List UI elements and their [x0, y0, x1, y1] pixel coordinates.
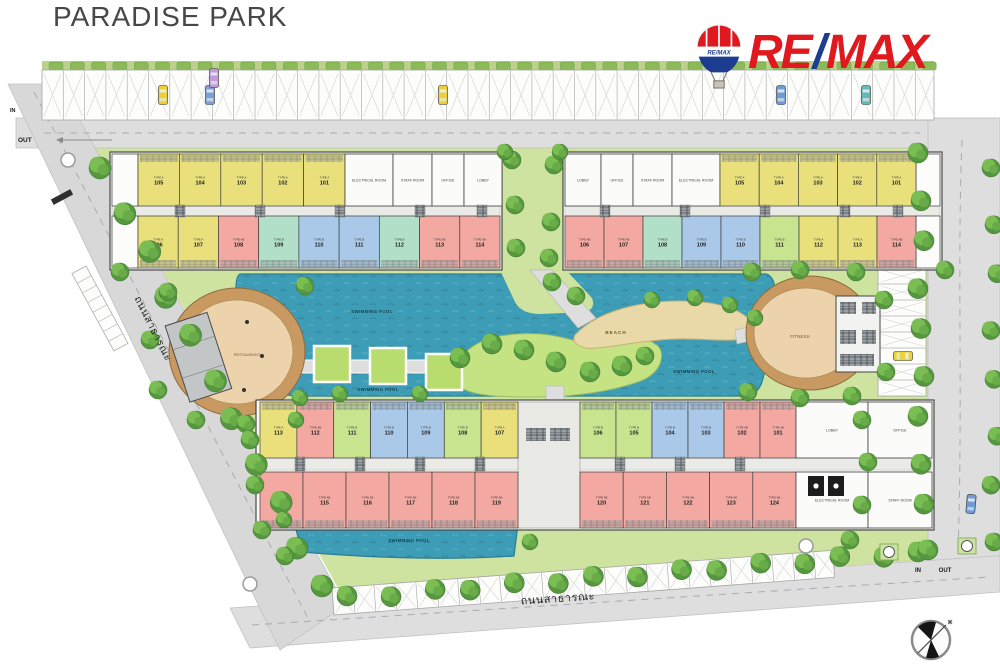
tree-icon — [514, 340, 534, 360]
svg-text:111: 111 — [355, 243, 364, 249]
svg-text:104: 104 — [196, 181, 206, 187]
unit-109: TYPE B109 — [259, 216, 299, 268]
unit-121: TYPE AB121 — [623, 472, 666, 528]
svg-text:120: 120 — [597, 501, 606, 507]
unit-111: TYPE B111 — [760, 216, 799, 268]
svg-text:TYPE AB: TYPE AB — [639, 496, 651, 500]
svg-text:OFFICE: OFFICE — [893, 429, 907, 433]
unit-103: TYPE A103 — [798, 154, 837, 206]
tree-icon — [237, 415, 255, 433]
room-electrical-room: ELECTRICAL ROOM — [345, 154, 393, 206]
svg-text:TYPE A: TYPE A — [153, 238, 163, 242]
svg-text:106: 106 — [580, 243, 589, 249]
tree-icon — [497, 144, 513, 160]
restaurant-dot — [260, 354, 264, 358]
svg-text:TYPE A: TYPE A — [892, 176, 902, 180]
tree-icon — [914, 494, 934, 514]
tree-icon — [612, 356, 632, 376]
tree-icon — [795, 554, 815, 574]
tree-icon — [149, 381, 167, 399]
room-office: OFFICE — [432, 154, 464, 206]
unit-104: TYPE B104 — [652, 402, 688, 458]
tree-icon — [580, 362, 600, 382]
svg-text:TYPE AB: TYPE AB — [362, 496, 374, 500]
tree-icon — [460, 580, 480, 600]
tree-icon — [722, 297, 738, 313]
tree-icon — [841, 531, 859, 549]
svg-text:TYPE B: TYPE B — [314, 238, 324, 242]
unit-103: TYPE B103 — [688, 402, 724, 458]
svg-text:TYPE A: TYPE A — [813, 176, 823, 180]
svg-text:TYPE AB: TYPE AB — [682, 496, 694, 500]
svg-text:TYPE AB: TYPE AB — [736, 426, 748, 430]
tree-icon — [276, 512, 292, 528]
svg-text:107: 107 — [194, 243, 203, 249]
svg-text:114: 114 — [892, 243, 902, 249]
unit-101: TYPE A101 — [877, 154, 916, 206]
tree-icon — [506, 196, 524, 214]
svg-text:108: 108 — [458, 431, 467, 437]
fitness-label: FITNESS — [790, 334, 809, 339]
tree-icon — [543, 273, 561, 291]
landscape-circle — [243, 577, 257, 591]
tree-icon — [381, 587, 401, 607]
gate-booth-circle — [884, 547, 895, 558]
svg-text:105: 105 — [629, 431, 638, 437]
remax-max: MAX — [826, 26, 927, 79]
tree-icon — [936, 261, 954, 279]
svg-text:TYPE B: TYPE B — [701, 426, 711, 430]
room-lobby: LOBBY — [464, 154, 502, 206]
unit-122: TYPE AB122 — [666, 472, 709, 528]
unit-115: TYPE AB115 — [303, 472, 346, 528]
tree-icon — [636, 347, 654, 365]
remax-wordmark: RE/MAX — [748, 22, 927, 84]
unit-102: TYPE AB102 — [724, 402, 760, 458]
tree-icon — [908, 278, 928, 298]
svg-text:118: 118 — [449, 501, 458, 507]
svg-text:TYPE AB: TYPE AB — [596, 496, 608, 500]
tree-icon — [139, 240, 161, 262]
svg-text:TYPE B: TYPE B — [658, 238, 668, 242]
svg-text:TYPE AB: TYPE AB — [309, 426, 321, 430]
unit-102: TYPE A102 — [838, 154, 877, 206]
label-out-left: OUT — [18, 137, 32, 144]
unit-101: TYPE AB101 — [760, 402, 796, 458]
svg-text:113: 113 — [274, 431, 283, 437]
svg-text:TYPE B: TYPE B — [274, 238, 284, 242]
svg-text:122: 122 — [683, 501, 692, 507]
tree-icon — [843, 387, 861, 405]
tree-icon — [270, 491, 292, 513]
tree-icon — [482, 334, 502, 354]
unit-112: TYPE AB112 — [297, 402, 334, 458]
svg-text:TYPE AB: TYPE AB — [233, 238, 245, 242]
tree-icon — [875, 291, 893, 309]
svg-text:TYPE B: TYPE B — [354, 238, 364, 242]
beach-label: BEACH — [605, 330, 626, 335]
unit-102: TYPE A102 — [262, 154, 303, 206]
svg-text:STAFF ROOM: STAFF ROOM — [888, 499, 911, 503]
unit-105: TYPE B105 — [616, 402, 652, 458]
remax-slash: / — [811, 26, 826, 79]
room-electrical-room: ELECTRICAL ROOM — [672, 154, 720, 206]
svg-text:TYPE A: TYPE A — [495, 426, 505, 430]
svg-text:TYPE A: TYPE A — [274, 426, 284, 430]
tree-icon — [187, 411, 205, 429]
tree-icon — [111, 263, 129, 281]
unit-116: TYPE AB116 — [346, 472, 389, 528]
svg-text:124: 124 — [770, 501, 780, 507]
room-lobby: LOBBY — [796, 402, 868, 458]
unit-106: TYPE AB106 — [565, 216, 604, 268]
svg-text:109: 109 — [421, 431, 430, 437]
svg-text:117: 117 — [406, 501, 415, 507]
car-icon — [894, 352, 913, 361]
unit-110: TYPE B110 — [371, 402, 408, 458]
unit-114: TYPE AB114 — [877, 216, 916, 268]
tree-icon — [542, 213, 560, 231]
svg-text:TYPE A: TYPE A — [774, 176, 784, 180]
fitness-block — [840, 302, 856, 314]
remax-re: RE — [748, 26, 811, 79]
svg-text:TYPE A: TYPE A — [853, 238, 863, 242]
unit-105: TYPE A105 — [138, 154, 179, 206]
tree-icon — [985, 533, 1000, 551]
svg-text:104: 104 — [774, 181, 784, 187]
room-lobby: LOBBY — [565, 154, 601, 206]
svg-text:TYPE A: TYPE A — [237, 176, 247, 180]
pool-label-1: SWIMMING POOL — [351, 309, 392, 314]
tree-icon — [332, 386, 348, 402]
tree-icon — [859, 453, 877, 471]
svg-text:OFFICE: OFFICE — [610, 179, 624, 183]
tree-icon — [911, 191, 931, 211]
svg-text:OFFICE: OFFICE — [441, 179, 455, 183]
unit-113: TYPE A113 — [838, 216, 877, 268]
svg-text:103: 103 — [237, 181, 246, 187]
unit-109: TYPE B109 — [682, 216, 721, 268]
tree-icon — [296, 277, 314, 295]
tree-icon — [743, 263, 761, 281]
tree-icon — [853, 411, 871, 429]
svg-text:112: 112 — [395, 243, 404, 249]
unit-107: TYPE AB107 — [604, 216, 643, 268]
svg-text:TYPE B: TYPE B — [736, 238, 746, 242]
svg-text:TYPE AB: TYPE AB — [579, 238, 591, 242]
room-office: OFFICE — [601, 154, 633, 206]
svg-text:110: 110 — [385, 431, 394, 437]
tree-icon — [707, 560, 727, 580]
car-icon — [439, 86, 448, 105]
unit-101: TYPE A101 — [304, 154, 345, 206]
tree-icon — [276, 547, 294, 565]
tree-icon — [567, 287, 585, 305]
unit-110: TYPE B110 — [299, 216, 339, 268]
svg-text:TYPE B: TYPE B — [775, 238, 785, 242]
tree-icon — [985, 370, 1000, 388]
tree-icon — [847, 263, 865, 281]
svg-text:119: 119 — [492, 501, 501, 507]
svg-text:111: 111 — [348, 431, 357, 437]
tree-icon — [245, 453, 267, 475]
svg-text:TYPE AB: TYPE AB — [725, 496, 737, 500]
tree-icon — [791, 389, 809, 407]
fitness-block — [862, 302, 876, 314]
tree-icon — [311, 575, 333, 597]
tree-icon — [908, 406, 928, 426]
unit-106: TYPE B106 — [580, 402, 616, 458]
unit-105: TYPE A105 — [720, 154, 759, 206]
gate-booth-circle — [962, 541, 973, 552]
tree-icon — [522, 534, 538, 550]
tree-icon — [292, 390, 308, 406]
car-icon — [206, 86, 215, 105]
svg-text:115: 115 — [320, 501, 329, 507]
svg-text:TYPE B: TYPE B — [384, 426, 394, 430]
tree-icon — [628, 567, 648, 587]
svg-text:TYPE AB: TYPE AB — [474, 238, 486, 242]
svg-text:TYPE AB: TYPE AB — [769, 496, 781, 500]
svg-text:TYPE B: TYPE B — [347, 426, 357, 430]
svg-text:101: 101 — [892, 181, 901, 187]
tree-icon — [159, 283, 177, 301]
room-staff-room: STAFF ROOM — [633, 154, 672, 206]
label-out-right: OUT — [939, 568, 952, 574]
tree-icon — [982, 159, 1000, 177]
svg-text:111: 111 — [775, 243, 784, 249]
pool-label-3: SWIMMING POOL — [673, 369, 714, 374]
fitness-block — [840, 330, 856, 344]
tree-icon — [911, 318, 931, 338]
svg-text:102: 102 — [853, 181, 862, 187]
tree-icon — [914, 231, 934, 251]
unit-124: TYPE AB124 — [753, 472, 796, 528]
svg-text:109: 109 — [697, 243, 706, 249]
car-icon — [210, 69, 219, 88]
svg-text:110: 110 — [315, 243, 324, 249]
unit-112: TYPE B112 — [379, 216, 419, 268]
tree-icon — [548, 573, 568, 593]
room-staff-room: STAFF ROOM — [393, 154, 432, 206]
tree-icon — [739, 383, 757, 401]
svg-text:ELECTRICAL ROOM: ELECTRICAL ROOM — [679, 179, 713, 183]
unit-108: TYPE AB108 — [218, 216, 258, 268]
tree-icon — [877, 363, 895, 381]
tree-icon — [425, 579, 445, 599]
svg-text:112: 112 — [814, 243, 823, 249]
svg-text:STAFF ROOM: STAFF ROOM — [641, 179, 664, 183]
tree-icon — [747, 310, 763, 326]
svg-text:113: 113 — [435, 243, 444, 249]
svg-text:LOBBY: LOBBY — [477, 179, 490, 183]
tree-icon — [672, 560, 692, 580]
remax-balloon-icon: RE/MAX — [692, 22, 746, 90]
svg-text:108: 108 — [658, 243, 667, 249]
svg-text:109: 109 — [274, 243, 283, 249]
svg-text:108: 108 — [234, 243, 243, 249]
tree-icon — [644, 292, 660, 308]
unit-123: TYPE AB123 — [710, 472, 753, 528]
unit-111: TYPE B111 — [339, 216, 379, 268]
svg-text:TYPE A: TYPE A — [814, 238, 824, 242]
fitness-block — [862, 330, 876, 344]
balloon-wordmark: RE/MAX — [707, 50, 731, 56]
svg-text:114: 114 — [475, 243, 485, 249]
pool-square-2 — [370, 348, 406, 384]
site-plan: TYPE A105TYPE A104TYPE A103TYPE A102TYPE… — [0, 0, 1000, 667]
tree-icon — [751, 553, 771, 573]
tree-icon — [985, 216, 1000, 234]
tree-icon — [337, 586, 357, 606]
unit-112: TYPE A112 — [799, 216, 838, 268]
unit-107: TYPE A107 — [178, 216, 218, 268]
remax-logo: RE/MAX RE/MAX — [692, 22, 927, 90]
svg-text:TYPE A: TYPE A — [278, 176, 288, 180]
svg-text:TYPE B: TYPE B — [697, 238, 707, 242]
landscape-circle — [61, 153, 75, 167]
tree-icon — [583, 566, 603, 586]
fitness-block — [840, 354, 874, 366]
svg-text:TYPE B: TYPE B — [593, 426, 603, 430]
svg-text:TYPE A: TYPE A — [319, 176, 329, 180]
tree-icon — [791, 261, 809, 279]
tree-icon — [412, 386, 428, 402]
tree-icon — [246, 476, 264, 494]
unit-120: TYPE AB120 — [580, 472, 623, 528]
svg-text:116: 116 — [363, 501, 372, 507]
label-in-right: IN — [915, 568, 921, 574]
tree-icon — [507, 239, 525, 257]
svg-text:TYPE AB: TYPE AB — [405, 496, 417, 500]
site-plan-canvas: TYPE A105TYPE A104TYPE A103TYPE A102TYPE… — [0, 0, 1000, 667]
svg-text:TYPE A: TYPE A — [193, 238, 203, 242]
svg-text:101: 101 — [320, 181, 329, 187]
svg-text:106: 106 — [593, 431, 602, 437]
svg-text:TYPE B: TYPE B — [629, 426, 639, 430]
restaurant-dot — [242, 388, 246, 392]
tree-icon — [540, 249, 558, 267]
svg-text:110: 110 — [736, 243, 745, 249]
tree-icon — [89, 157, 111, 179]
svg-text:TYPE AB: TYPE AB — [891, 238, 903, 242]
svg-text:103: 103 — [701, 431, 710, 437]
svg-text:TYPE AB: TYPE AB — [618, 238, 630, 242]
unit-111: TYPE B111 — [334, 402, 371, 458]
unit-109: TYPE B109 — [407, 402, 444, 458]
unit-103: TYPE A103 — [221, 154, 262, 206]
svg-text:ELECTRICAL ROOM: ELECTRICAL ROOM — [815, 499, 849, 503]
unit-108: TYPE B108 — [643, 216, 682, 268]
svg-text:113: 113 — [853, 243, 862, 249]
unit-104: TYPE A104 — [179, 154, 220, 206]
svg-text:101: 101 — [773, 431, 782, 437]
label-in-left: IN — [10, 108, 16, 114]
unit-114: TYPE AB114 — [460, 216, 500, 268]
tree-icon — [504, 573, 524, 593]
svg-text:TYPE B: TYPE B — [665, 426, 675, 430]
tree-icon — [914, 366, 934, 386]
svg-text:TYPE A: TYPE A — [154, 176, 164, 180]
tree-icon — [918, 540, 938, 560]
svg-text:TYPE AB: TYPE AB — [448, 496, 460, 500]
unit-117: TYPE AB117 — [389, 472, 432, 528]
svg-text:107: 107 — [495, 431, 504, 437]
restaurant-label: RESTAURANT — [234, 352, 261, 357]
svg-text:105: 105 — [735, 181, 744, 187]
svg-text:LOBBY: LOBBY — [577, 179, 590, 183]
svg-text:102: 102 — [737, 431, 746, 437]
tree-icon — [180, 324, 202, 346]
svg-text:TYPE B: TYPE B — [458, 426, 468, 430]
pool-label-2: SWIMMING POOL — [357, 387, 398, 392]
unit-108: TYPE B108 — [444, 402, 481, 458]
svg-text:123: 123 — [727, 501, 736, 507]
unit-113: TYPE AB113 — [420, 216, 460, 268]
svg-text:TYPE B: TYPE B — [421, 426, 431, 430]
tree-icon — [253, 521, 271, 539]
tree-icon — [830, 546, 850, 566]
page-title: PARADISE PARK — [53, 1, 287, 33]
tree-icon — [982, 321, 1000, 339]
tree-icon — [908, 143, 928, 163]
svg-text:105: 105 — [154, 181, 163, 187]
svg-text:102: 102 — [278, 181, 287, 187]
unit-110: TYPE B110 — [721, 216, 760, 268]
svg-text:LOBBY: LOBBY — [826, 429, 839, 433]
svg-text:121: 121 — [640, 501, 649, 507]
car-icon — [966, 494, 977, 514]
tree-icon — [687, 290, 703, 306]
svg-text:TYPE AB: TYPE AB — [491, 496, 503, 500]
tree-icon — [241, 431, 259, 449]
unit-113: TYPE A113 — [260, 402, 297, 458]
tree-icon — [205, 370, 227, 392]
svg-text:104: 104 — [665, 431, 675, 437]
svg-text:TYPE AB: TYPE AB — [319, 496, 331, 500]
landscape-circle — [799, 539, 813, 553]
svg-text:TYPE B: TYPE B — [394, 238, 404, 242]
pool-label-4: SWIMMING POOL — [388, 538, 429, 543]
unit-104: TYPE A104 — [759, 154, 798, 206]
tree-icon — [552, 144, 568, 160]
tree-icon — [114, 203, 136, 225]
unit-118: TYPE AB118 — [432, 472, 475, 528]
svg-text:112: 112 — [311, 431, 320, 437]
svg-text:TYPE A: TYPE A — [735, 176, 745, 180]
svg-text:107: 107 — [619, 243, 628, 249]
tree-icon — [982, 476, 1000, 494]
tree-icon — [853, 496, 871, 514]
unit-119: TYPE AB119 — [475, 472, 518, 528]
svg-text:TYPE A: TYPE A — [195, 176, 205, 180]
pool-square-1 — [314, 346, 350, 382]
tree-icon — [450, 348, 470, 368]
svg-text:STAFF ROOM: STAFF ROOM — [401, 179, 424, 183]
car-icon — [159, 86, 168, 105]
svg-text:TYPE AB: TYPE AB — [434, 238, 446, 242]
restaurant-dot — [245, 320, 249, 324]
tree-icon — [911, 454, 931, 474]
unit-107: TYPE A107 — [481, 402, 518, 458]
tree-icon — [546, 352, 566, 372]
svg-text:TYPE A: TYPE A — [852, 176, 862, 180]
svg-text:ELECTRICAL ROOM: ELECTRICAL ROOM — [352, 179, 386, 183]
svg-text:TYPE AB: TYPE AB — [772, 426, 784, 430]
svg-text:103: 103 — [813, 181, 822, 187]
tree-icon — [288, 412, 304, 428]
